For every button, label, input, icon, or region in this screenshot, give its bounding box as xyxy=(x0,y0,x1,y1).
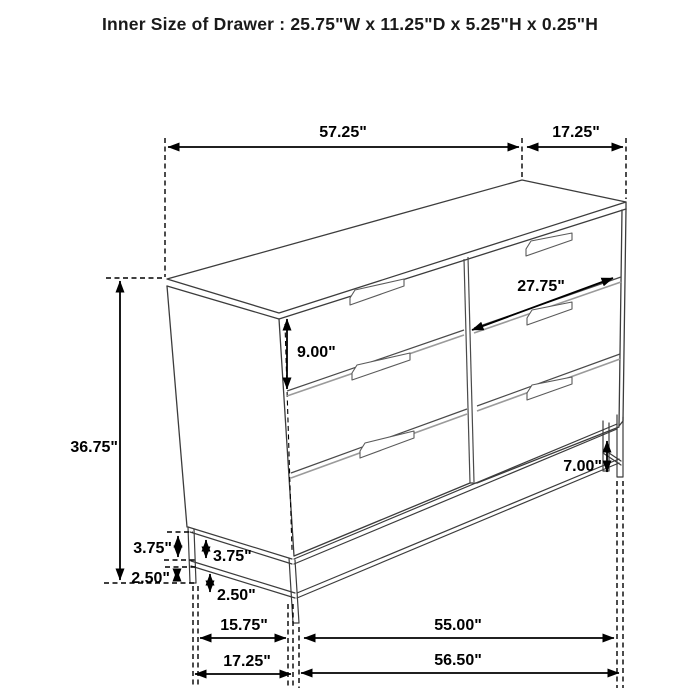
dim-front-leg-span-outer-label: 56.50" xyxy=(434,652,482,669)
handle-left-middle xyxy=(352,353,410,380)
leg-left-back xyxy=(188,527,196,583)
handle-right-middle xyxy=(527,302,572,325)
handle-right-bottom xyxy=(527,377,572,400)
dim-side-leg-span-outer-label: 17.25" xyxy=(223,653,271,670)
dresser-dimension-drawing: 57.25" 17.25" 36.75" 9.00" xyxy=(0,0,700,700)
dim-drawer-width: 27.75" xyxy=(472,278,613,330)
dim-front-base-upper-label: 3.75" xyxy=(213,548,252,565)
handle-left-bottom xyxy=(360,431,414,458)
dimension-diagram-page: Inner Size of Drawer : 25.75"W x 11.25"D… xyxy=(0,0,700,700)
dim-front-leg-span-inner-label: 55.00" xyxy=(434,617,482,634)
dim-overall-depth: 17.25" xyxy=(527,124,623,147)
stretcher-right-side xyxy=(603,449,621,465)
dim-overall-width: 57.25" xyxy=(168,124,519,147)
rail-front-top xyxy=(294,424,617,564)
dim-drawer-width-label: 27.75" xyxy=(517,278,565,295)
dim-overall-width-label: 57.25" xyxy=(319,124,367,141)
dim-overall-depth-label: 17.25" xyxy=(552,124,600,141)
dim-side-base-lower: 2.50" xyxy=(131,567,197,587)
dim-front-base-lower-label: 2.50" xyxy=(217,587,256,604)
dresser-left-panel xyxy=(167,286,294,556)
dim-front-leg-span-outer: 56.50" xyxy=(301,652,619,673)
stretcher-front xyxy=(297,459,619,598)
drawer-center-divider xyxy=(464,257,474,483)
dim-side-base-lower-label: 2.50" xyxy=(131,570,170,587)
dim-side-base-upper-label: 3.75" xyxy=(133,540,172,557)
dim-side-base-upper: 3.75" xyxy=(133,532,195,560)
leg-front-left xyxy=(289,558,299,623)
dim-drawer-height: 9.00" xyxy=(287,319,336,389)
dim-side-leg-span-inner-label: 15.75" xyxy=(220,617,268,634)
dim-front-leg-span-inner: 55.00" xyxy=(304,617,614,638)
dim-side-leg-span-inner: 15.75" xyxy=(200,617,286,638)
dim-overall-height-label: 36.75" xyxy=(70,439,118,456)
dim-side-leg-span-outer: 17.25" xyxy=(195,653,291,674)
dim-right-leg-height-label: 7.00" xyxy=(563,458,602,475)
handle-right-top xyxy=(526,233,572,256)
dim-drawer-height-label: 9.00" xyxy=(297,344,336,361)
